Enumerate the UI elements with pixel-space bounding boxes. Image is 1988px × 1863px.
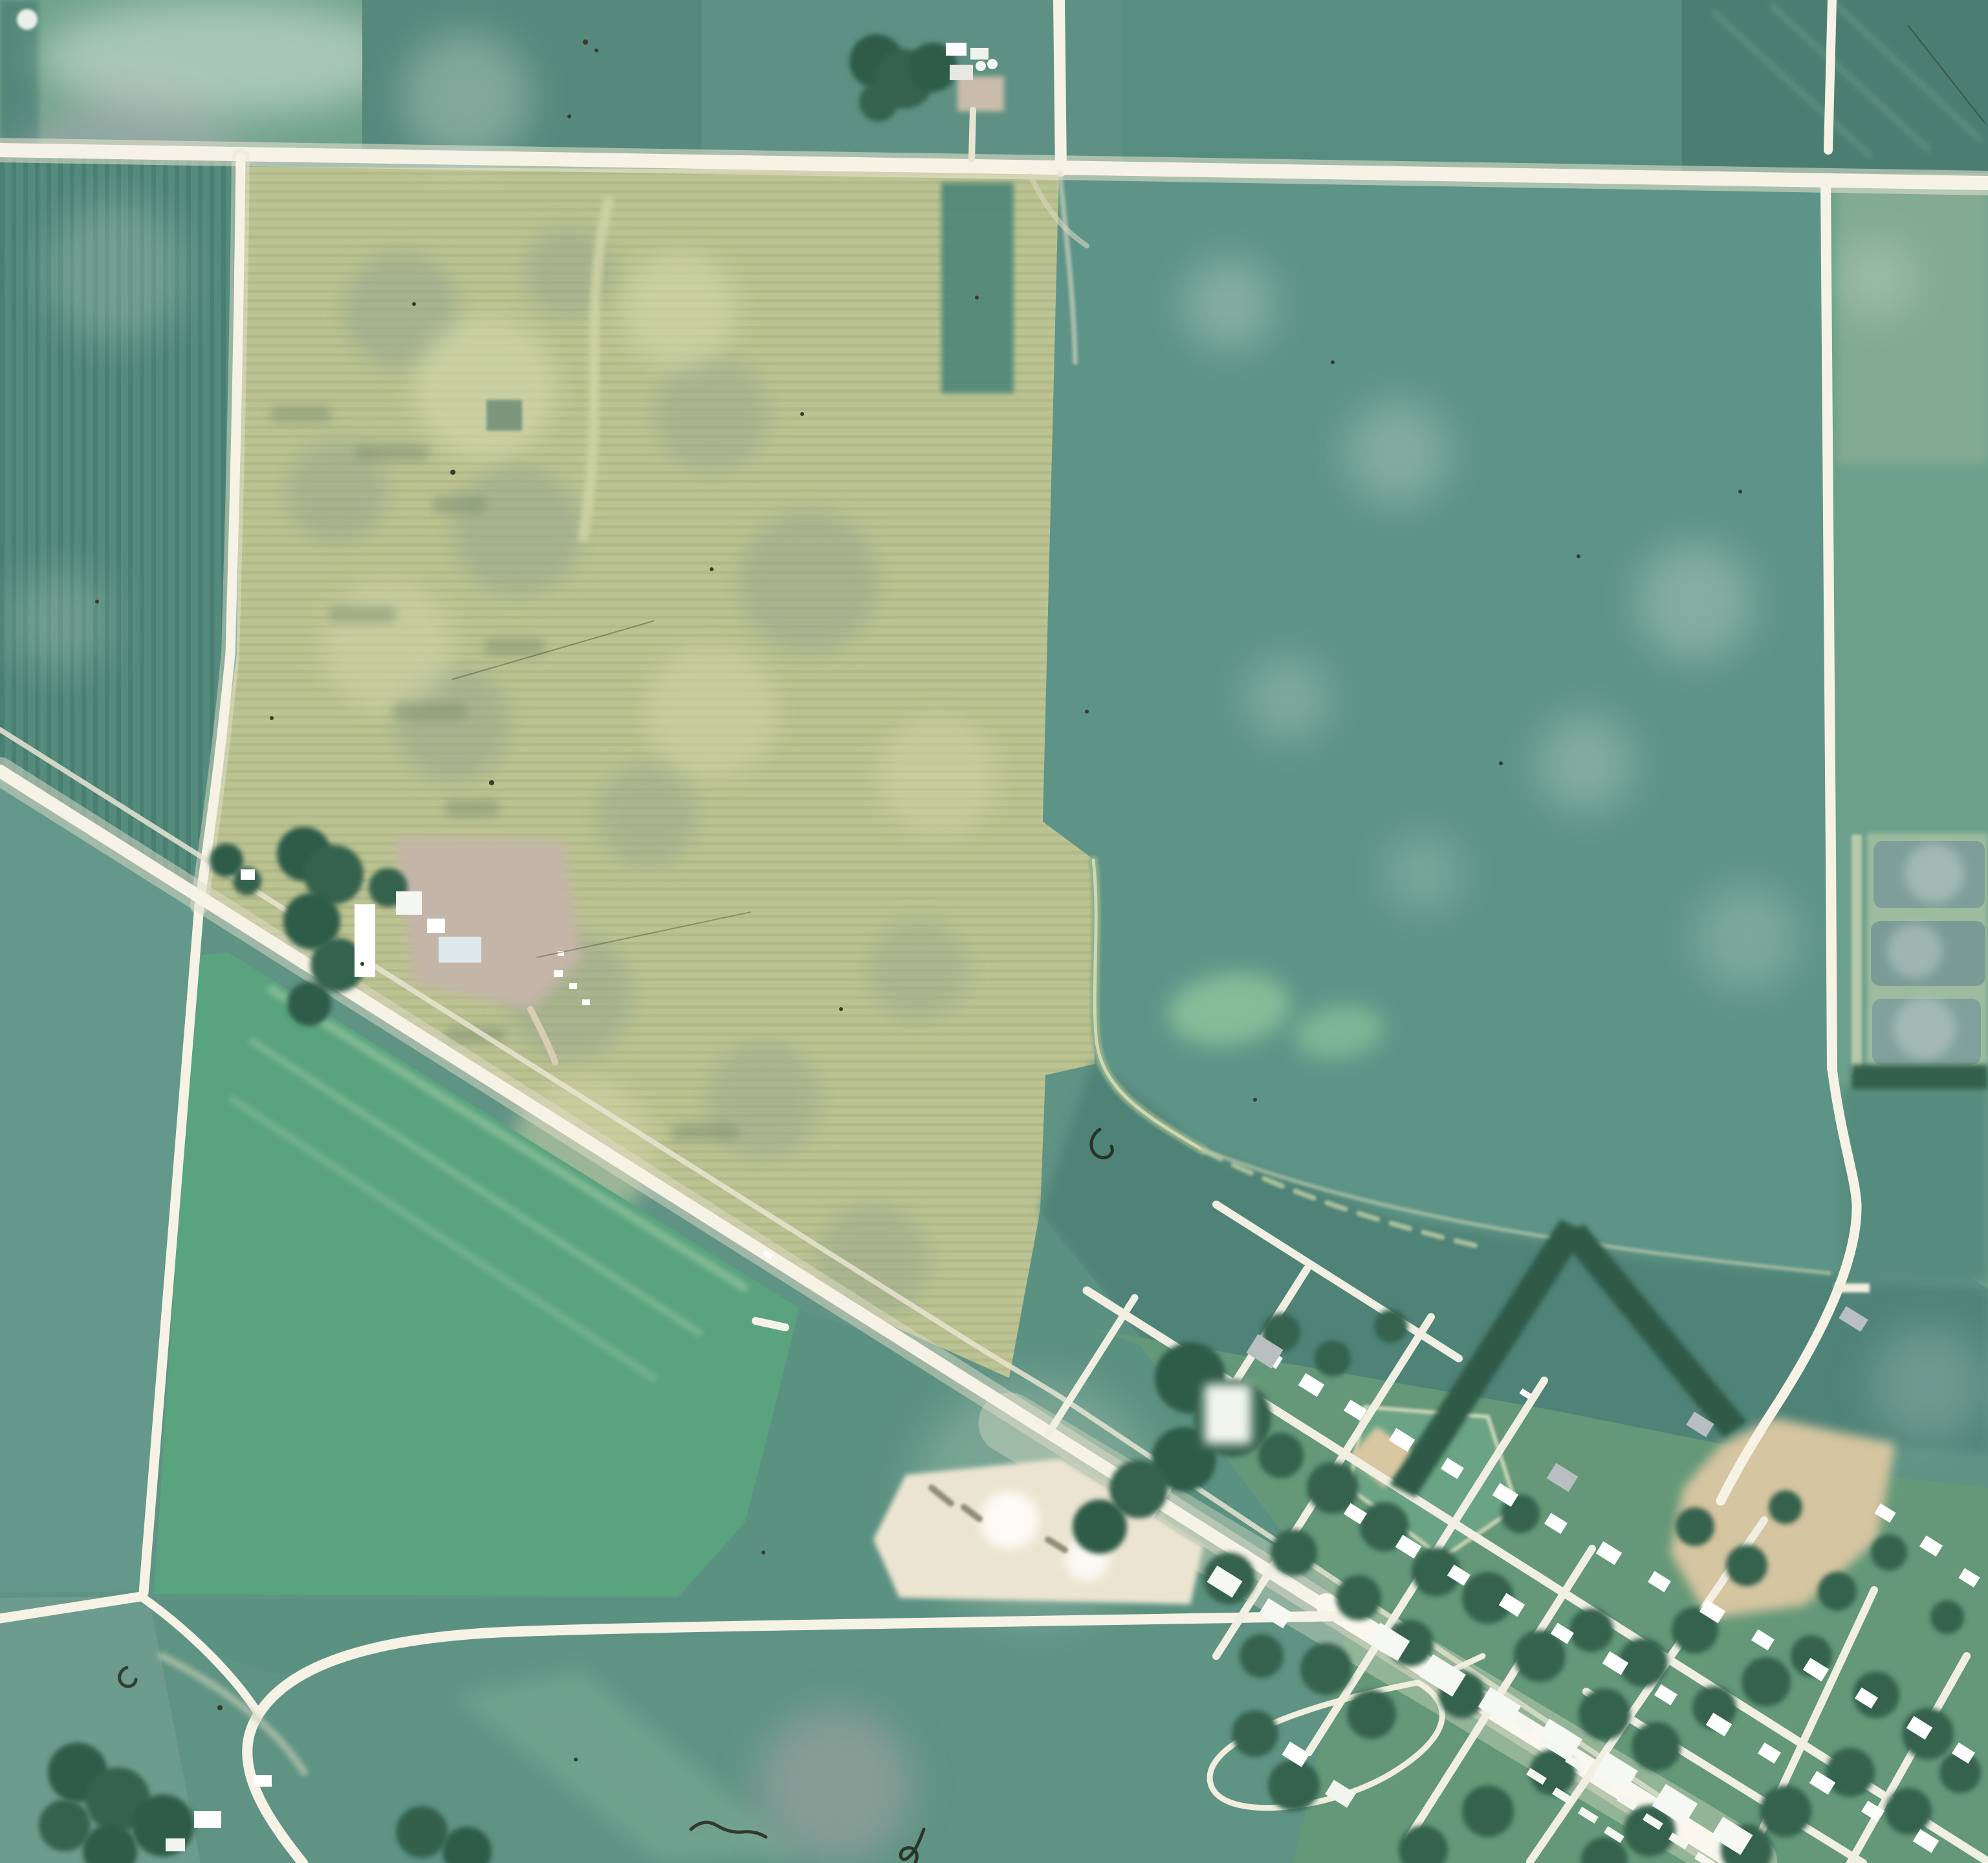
swfarm-bldg-1 (194, 1811, 221, 1828)
yellow-dark-subfield (941, 182, 1014, 393)
yellow-mottle-5 (653, 356, 770, 472)
yellow-mottle-11 (867, 919, 970, 1022)
town-trees-0 (1258, 1433, 1304, 1478)
town-nw-treemass-5 (1073, 1499, 1127, 1554)
town-trees-37 (1726, 1545, 1767, 1586)
yellow-light-2 (621, 252, 737, 369)
film-speck-cluster-7 (360, 962, 364, 966)
cloud-ne-3 (1637, 543, 1753, 660)
yellow-light-1 (414, 317, 556, 459)
road-mid-vertical-top (1059, 0, 1061, 171)
film-speck-cluster-9 (710, 567, 714, 571)
bottom-center-trees-1 (396, 1806, 448, 1858)
film-speck-cluster-11 (1085, 710, 1089, 714)
road-right-vertical-top (1828, 0, 1832, 150)
cloud-ne-4 (1245, 657, 1329, 741)
farm-top-silo-2 (987, 59, 998, 69)
town-trees-26 (1826, 1748, 1875, 1797)
cloud-ne-6 (1837, 239, 1915, 317)
farm-top-trees-4 (859, 83, 898, 122)
film-speck-cluster-17 (574, 1758, 578, 1761)
film-speck-cluster-16 (217, 1705, 223, 1710)
yellow-mottle-8 (595, 763, 699, 867)
elevator-tank-3 (582, 999, 590, 1005)
town-trees-28 (1885, 1788, 1932, 1835)
town-trees-10 (1240, 1634, 1283, 1678)
film-speck-cluster-20 (975, 296, 979, 300)
town-trees-40 (1315, 1340, 1351, 1377)
film-speck-cluster-15 (761, 1551, 765, 1554)
film-speck-cluster-4 (450, 470, 455, 475)
cloud-ne-1 (1184, 259, 1274, 349)
film-speck-cluster-18 (1499, 761, 1503, 765)
lagoon-track (1851, 834, 1862, 1074)
town-nw-bright-lot (1205, 1384, 1251, 1444)
yellow-light-3 (323, 582, 453, 712)
town-trees-32 (1268, 1759, 1320, 1811)
farm-top-barn (950, 65, 973, 80)
town-trees-17 (1578, 1688, 1630, 1740)
film-speck-cluster-10 (489, 780, 494, 785)
lagoon-sheen-2 (1888, 924, 1942, 978)
yellow-light-6 (880, 718, 996, 834)
town-trees-22 (1742, 1657, 1791, 1706)
film-speck-cluster-13 (1577, 554, 1580, 558)
field-east-strip-upper (1837, 186, 1988, 464)
yellow-dark-smallsq (486, 400, 522, 431)
film-speck-cluster-12 (1331, 360, 1335, 364)
film-speck-cluster-5 (270, 716, 274, 720)
elevator-dirt (396, 838, 582, 1009)
film-speck-cluster-3 (412, 302, 416, 306)
cloud-ne-2 (1346, 401, 1449, 505)
cloud-top-2 (401, 32, 530, 162)
lagoon-sheen-1 (1905, 844, 1964, 903)
cloud-ne-8 (1384, 834, 1462, 912)
town-trees-20 (1462, 1785, 1514, 1837)
swfarm-trees-4 (39, 1800, 91, 1851)
swfarm-bldg-3 (254, 1775, 272, 1787)
town-trees-11 (1347, 1690, 1396, 1739)
film-white-speck (17, 9, 38, 30)
farm-top-house (946, 43, 967, 56)
film-speck-cluster-0 (583, 39, 588, 45)
film-speck-cluster-8 (800, 412, 804, 416)
elevator-bldg-small (427, 919, 445, 933)
yellow-mottle-4 (453, 466, 582, 595)
nsfarm-house (241, 869, 255, 880)
town-trees-35 (1871, 1534, 1907, 1571)
film-speck-cluster-21 (839, 1007, 843, 1011)
field-top-rightmid (1122, 0, 1685, 168)
yellow-mottle-6 (737, 511, 880, 653)
town-trees-3 (1271, 1529, 1317, 1576)
town-trees-41 (1374, 1309, 1408, 1343)
treerow-below-lagoons (1851, 1065, 1988, 1089)
town-trees-38 (1769, 1490, 1802, 1524)
aerial-photograph (0, 0, 1988, 1863)
road-right-vertical (1826, 181, 1832, 1069)
elevator-tank-2 (569, 983, 577, 989)
film-speck-cluster-19 (1738, 490, 1742, 494)
film-speck-cluster-14 (1253, 1098, 1257, 1102)
farm-top-silo-1 (976, 61, 986, 71)
town-trees-14 (1569, 1608, 1613, 1652)
field-below-lagoons (1841, 1087, 1988, 1281)
film-speck-cluster-6 (95, 600, 99, 604)
elevator-bldg-sq (396, 891, 422, 915)
farm-top-driveway (972, 110, 973, 159)
town-trees-33 (1232, 1710, 1278, 1757)
town-trees-5 (1336, 1575, 1381, 1620)
elevator-shed-blue (439, 937, 481, 963)
swfarm-bldg-2 (166, 1838, 185, 1851)
screenshot-stage (0, 0, 1988, 1863)
town-trees-34 (1818, 1572, 1857, 1611)
farm-top-shed (970, 48, 989, 60)
town-trees-27 (1760, 1785, 1811, 1837)
town-trees-44 (1930, 1600, 1964, 1634)
cloud-left-2 (6, 569, 110, 673)
town-trees-9 (1300, 1643, 1352, 1695)
cloud-left-1 (45, 201, 188, 343)
film-speck-cluster-2 (567, 114, 571, 118)
cloud-corner-br (1870, 1326, 1986, 1443)
south-pink-streak (757, 1708, 912, 1863)
elevator-trees-5 (287, 982, 331, 1026)
lagoon-sheen-3 (1894, 997, 1956, 1060)
town-trees-36 (1676, 1507, 1714, 1546)
yellow-light-4 (647, 647, 776, 776)
farm-top-dirt (957, 76, 1004, 111)
town-trees-18 (1632, 1722, 1681, 1771)
elevator-bldg-long (355, 904, 375, 977)
road-lagoon-spur (1835, 1283, 1870, 1292)
gravel-bright-1 (980, 1491, 1038, 1549)
cloud-ne-5 (1536, 715, 1633, 812)
film-speck-cluster-1 (595, 49, 598, 52)
elevator-tank-1 (554, 970, 563, 977)
field-ne-large (1043, 171, 1854, 1273)
cloud-ne-7 (1695, 886, 1798, 990)
